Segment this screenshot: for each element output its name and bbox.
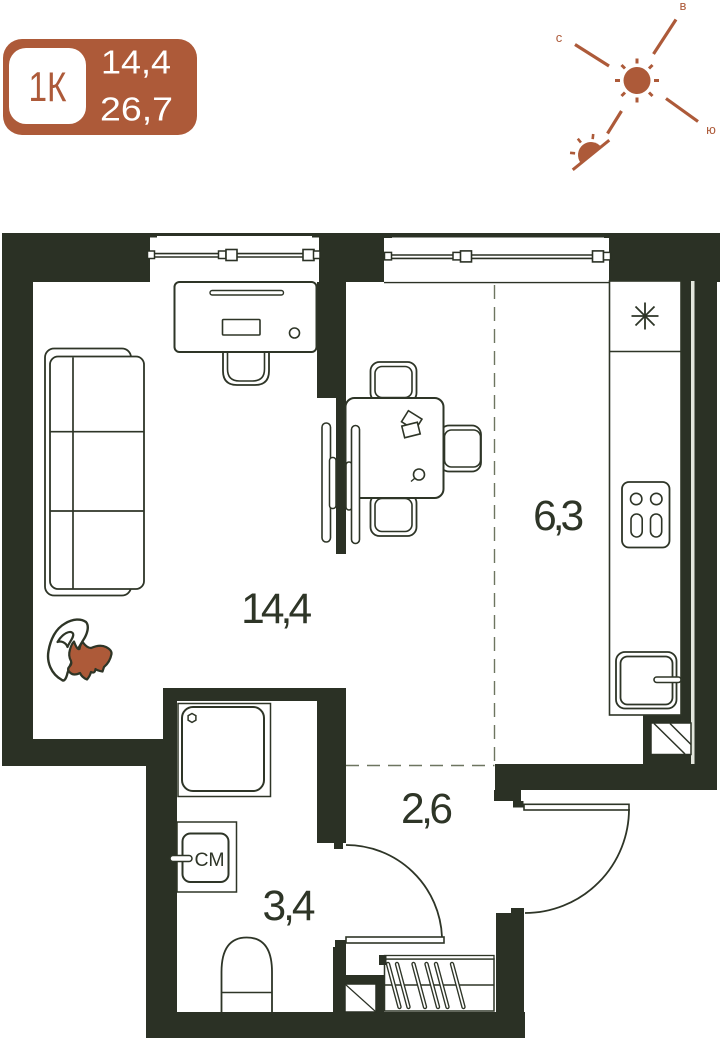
svg-text:14,4: 14,4 (241, 586, 312, 633)
svg-text:6,3: 6,3 (533, 493, 584, 540)
svg-text:1К: 1К (29, 63, 67, 110)
svg-text:СМ: СМ (195, 849, 225, 871)
svg-text:3,4: 3,4 (263, 883, 316, 930)
svg-text:2,6: 2,6 (401, 786, 453, 833)
svg-text:ю: ю (706, 122, 716, 137)
svg-text:26,7: 26,7 (100, 92, 173, 129)
svg-text:в: в (680, 0, 687, 13)
svg-text:14,4: 14,4 (101, 45, 171, 82)
svg-text:с: с (556, 30, 563, 45)
